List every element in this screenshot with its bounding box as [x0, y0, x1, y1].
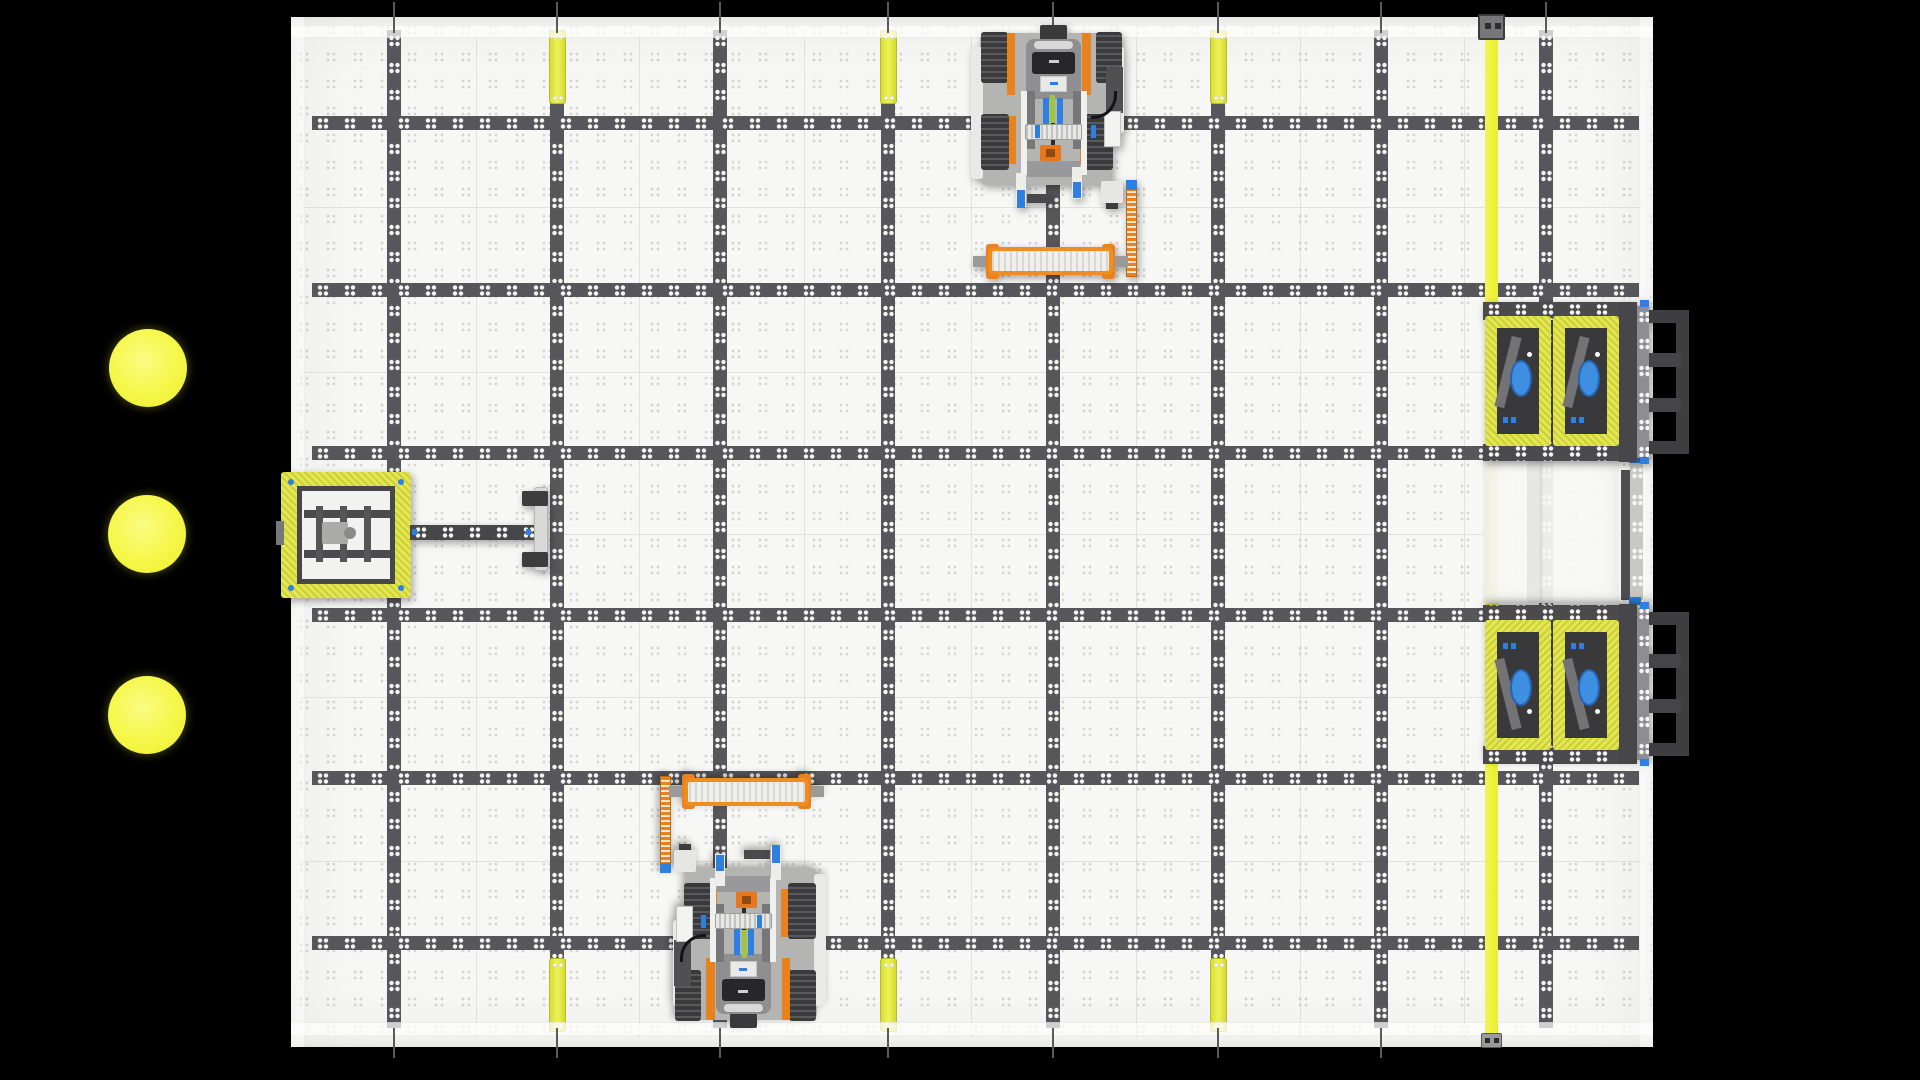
- wall-stub-bottom: [1052, 1028, 1054, 1058]
- segment-hole: [884, 963, 888, 967]
- robot-track-rear-left: [981, 114, 1009, 170]
- segment-hole: [1214, 96, 1218, 100]
- goal-ext-rung: [1649, 699, 1681, 713]
- field-edge-bottom: [291, 1022, 1653, 1035]
- robot-side-box: [1104, 111, 1121, 147]
- field-beam-vertical: [881, 30, 895, 1028]
- robot-green-gear: [742, 928, 747, 958]
- wall-stub-top: [719, 2, 721, 33]
- robot-inner-col: [1027, 91, 1035, 149]
- segment-hole: [559, 963, 563, 967]
- left-goal-tab: [276, 521, 284, 545]
- goal-stud-strip: [1637, 608, 1649, 760]
- wall-stub-top: [1545, 2, 1547, 33]
- goal-blue-pin: [398, 479, 404, 485]
- yellow-marker-segment: [880, 958, 897, 1032]
- goal-blue-pin: [1640, 300, 1649, 307]
- goal-blue-pin: [1503, 417, 1508, 423]
- robot-brain-screen: [1032, 52, 1075, 74]
- field-beam-horizontal: [312, 283, 1639, 297]
- goal-blue-pin: [1511, 643, 1516, 649]
- field-beam-horizontal: [312, 771, 1639, 785]
- robot-orange-rail: [781, 889, 788, 937]
- goal-bottom-bar: [1483, 444, 1635, 461]
- goal-ext-rung: [1649, 398, 1681, 412]
- tile-seam: [639, 27, 640, 1037]
- robot-track-front-left: [981, 32, 1008, 83]
- crossbar-stub: [811, 786, 824, 797]
- connector-hole: [1494, 1038, 1499, 1043]
- robot-module-led: [739, 968, 747, 971]
- goal-right-column: [1619, 604, 1637, 764]
- robot-screen-glyph: [738, 990, 748, 993]
- goal-dot-b: [1595, 709, 1600, 714]
- crossbar-stub: [669, 786, 682, 797]
- crossbar-stub: [973, 256, 986, 267]
- yellow-marker-segment: [549, 958, 566, 1032]
- robot-brain-top: [724, 1004, 763, 1012]
- blue-disc[interactable]: [1578, 360, 1600, 397]
- lever-arm[interactable]: [410, 525, 536, 540]
- beam-ruler-cap: [660, 864, 671, 873]
- robot-prong-blue: [716, 855, 724, 871]
- segment-hole: [1214, 963, 1218, 967]
- goal-blue-pin: [398, 585, 404, 591]
- tile-seam: [1464, 27, 1465, 1037]
- wall-stub-top: [887, 2, 889, 33]
- wall-stub-bottom: [1217, 1028, 1219, 1058]
- goal-blue-pin: [288, 585, 294, 591]
- tile-seam: [301, 861, 1643, 862]
- wall-stub-bottom: [719, 1028, 721, 1058]
- right-goal-bottom[interactable]: [1477, 600, 1693, 768]
- goal-stud-strip: [1637, 306, 1649, 458]
- robot-blue-pin: [701, 915, 706, 928]
- wall-stub-top: [1217, 2, 1219, 33]
- segment-hole: [553, 96, 557, 100]
- left-goal-assembly[interactable]: [276, 470, 556, 600]
- wall-stub-bottom: [887, 1028, 889, 1058]
- robot-track-rear-left: [788, 883, 816, 939]
- robot-prong-blue: [1073, 182, 1081, 198]
- yellow-marker-segment: [549, 30, 566, 104]
- segment-hole: [1220, 96, 1224, 100]
- field-render-viewport: [0, 0, 1920, 1080]
- robot-orange-rail: [1082, 33, 1091, 95]
- goal-blue-pin: [288, 479, 294, 485]
- robot-corner-dots: [1106, 203, 1118, 209]
- robot-corner-white: [1101, 181, 1123, 203]
- goal-ext-right-rail: [1676, 310, 1689, 454]
- yellow-marker-segment: [880, 30, 897, 104]
- lever-end-cap: [522, 552, 548, 567]
- robot-antenna-block: [1040, 25, 1067, 40]
- robot-blue-pin: [1035, 125, 1040, 138]
- goal-blue-pin: [1640, 759, 1649, 766]
- robot-orange-rail: [706, 958, 715, 1020]
- goal-blue-pin: [1571, 417, 1576, 423]
- beam-ruler-cap: [1126, 180, 1137, 189]
- robot-inner-col: [1073, 91, 1081, 149]
- field-beam-vertical: [1211, 30, 1225, 1028]
- goal-blue-pin: [526, 529, 531, 535]
- goal-blue-pin: [1511, 417, 1516, 423]
- robot-module-led: [1050, 82, 1058, 85]
- robot-blue-pin: [734, 929, 740, 955]
- goal-ext-rung: [1649, 654, 1681, 668]
- segment-hole: [559, 96, 563, 100]
- connector-hole: [1495, 23, 1501, 29]
- tile-seam: [1300, 27, 1301, 1037]
- goal-blue-pin: [1640, 457, 1649, 464]
- segment-hole: [890, 963, 894, 967]
- field-beam-horizontal: [312, 608, 1639, 622]
- robot-motor-core: [1046, 149, 1055, 157]
- wall-stub-bottom: [1380, 1028, 1382, 1058]
- robot-prong-blue: [1017, 190, 1025, 208]
- robot-screen-glyph: [1049, 60, 1059, 63]
- segment-hole: [1220, 963, 1224, 967]
- segment-hole: [890, 96, 894, 100]
- robot-small-crossbar: [744, 850, 770, 859]
- robot-green-gear: [1050, 95, 1055, 125]
- yellow-line-bottom-connector: [1481, 1033, 1502, 1048]
- robot-track-front-left: [789, 970, 816, 1021]
- robot-top[interactable]: [950, 25, 1142, 281]
- tile-seam: [301, 372, 1643, 373]
- robot-blue-pin: [757, 915, 762, 928]
- yellow-line-top-connector: [1478, 14, 1505, 40]
- yellow-marker-segment: [1210, 958, 1227, 1032]
- robot-roller: [1025, 124, 1082, 140]
- yellow-marker-segment: [1210, 30, 1227, 104]
- goal-blue-pin: [1640, 602, 1649, 609]
- field-beam-horizontal: [312, 936, 1639, 950]
- frosted-panel-band: [1527, 459, 1543, 603]
- field-beam-horizontal: [312, 446, 1639, 460]
- robot-blue-pin: [1043, 98, 1049, 124]
- robot-blue-pin: [1091, 125, 1096, 138]
- right-goal-top[interactable]: [1477, 298, 1693, 466]
- yellow-ball-3[interactable]: [108, 676, 186, 754]
- robot-blue-pin: [1057, 98, 1063, 124]
- goal-blue-pin: [1579, 643, 1584, 649]
- robot-motor-core: [742, 896, 751, 904]
- robot-corner-dots: [679, 844, 691, 850]
- goal-blue-pin: [412, 529, 417, 535]
- blue-disc[interactable]: [1510, 360, 1532, 397]
- robot-small-crossbar: [1027, 194, 1053, 203]
- frosted-panel: [1483, 459, 1619, 603]
- connector-hole: [1485, 1038, 1490, 1043]
- segment-hole: [884, 96, 888, 100]
- robot-prong-blue: [772, 845, 780, 863]
- blue-disc[interactable]: [1578, 669, 1600, 706]
- left-goal-mechanism-tip: [344, 527, 356, 539]
- robot-bottom[interactable]: [655, 772, 847, 1028]
- wall-stub-bottom: [556, 1028, 558, 1058]
- robot-corner-white: [674, 850, 696, 872]
- goal-dot-a: [1527, 709, 1532, 714]
- robot-brain-top: [1034, 41, 1073, 49]
- goal-ext-right-rail: [1676, 612, 1689, 756]
- yellow-ball-2[interactable]: [108, 495, 186, 573]
- panel-side-strip: [1630, 462, 1643, 600]
- robot-orange-rail: [782, 958, 790, 1020]
- crossbar-frame[interactable]: [684, 778, 809, 806]
- goal-dot-a: [1527, 352, 1532, 357]
- panel-side-dark-bar: [1621, 470, 1630, 600]
- robot-orange-rail: [1007, 33, 1015, 95]
- left-goal-post: [364, 506, 371, 562]
- crossbar-frame[interactable]: [988, 247, 1113, 275]
- tile-seam: [301, 697, 1643, 698]
- blue-disc[interactable]: [1510, 669, 1532, 706]
- wall-stub-top: [556, 2, 558, 33]
- goal-dot-b: [1595, 352, 1600, 357]
- lever-end-cap: [522, 491, 548, 506]
- yellow-ball-1[interactable]: [109, 329, 187, 407]
- goal-blue-pin: [1503, 643, 1508, 649]
- goal-right-column: [1619, 302, 1637, 462]
- segment-hole: [553, 963, 557, 967]
- connector-hole: [1485, 23, 1491, 29]
- goal-ext-rung: [1649, 353, 1681, 367]
- goal-blue-pin: [1571, 643, 1576, 649]
- wall-stub-bottom: [393, 1028, 395, 1058]
- robot-orange-rail: [1009, 116, 1016, 164]
- crossbar-stub: [1115, 256, 1128, 267]
- goal-blue-pin: [1579, 417, 1584, 423]
- robot-blue-pin: [748, 929, 754, 955]
- robot-roller: [715, 913, 772, 929]
- field-beam-vertical: [1374, 30, 1388, 1028]
- wall-stub-top: [1380, 2, 1382, 33]
- wall-stub-top: [393, 2, 395, 33]
- robot-antenna-block: [730, 1013, 757, 1028]
